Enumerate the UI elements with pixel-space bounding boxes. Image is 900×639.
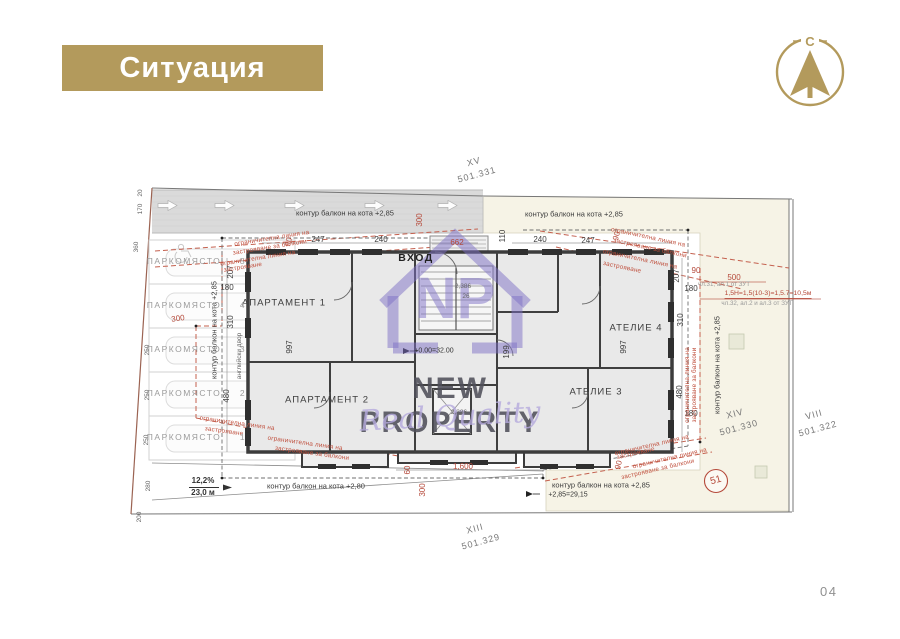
parking-spot-number: 5 — [240, 257, 246, 266]
regulation-note: застрояване — [602, 261, 641, 275]
red-dim-60: 60 — [404, 466, 412, 475]
dim-20-boundary: 20 — [138, 189, 145, 196]
elevation-marker-label: +2,85=29,15 — [548, 492, 587, 499]
parking-spot-number: 2 — [240, 389, 246, 398]
dim-180-right-top: 180 — [684, 285, 697, 293]
red-dim-300-left: 300 — [171, 314, 185, 324]
height-formula: 1,5Н=1,5(10-3)=1,5.7=10,5м — [725, 291, 812, 299]
law-reference: чл.31, ал.1 от ЗУТ — [698, 282, 750, 288]
parking-spot-number: 3 — [240, 345, 246, 354]
stair-count: 26 — [462, 294, 469, 301]
balcony-contour-label: контур балкон на кота +2,85 — [210, 281, 218, 379]
dim-310-right: 310 — [677, 313, 685, 326]
dim-997-left: 997 — [286, 340, 294, 353]
dim-240-top-left: 240 — [374, 236, 387, 244]
dim-207-right: 207 — [673, 269, 681, 282]
red-dim-90-bottomright: 90 — [614, 460, 624, 471]
parking-spot-label: ПАРКОМЯСТО — [147, 301, 221, 310]
dim-240-top-right: 240 — [533, 236, 546, 244]
dim-360-boundary: 360 — [134, 242, 141, 253]
page-number: 04 — [820, 584, 837, 599]
parking-spot-number: 4 — [240, 301, 246, 310]
dim-200-boundary: 200 — [137, 512, 144, 523]
red-dim-1600: 1,600 — [453, 463, 473, 471]
law-reference: чл.32, ал.2 и ал.3 от ЗУТ — [721, 301, 792, 307]
balcony-contour-label: контур балкон на кота +2,85 — [525, 210, 623, 218]
parking-spot-label: ПАРКОМЯСТО — [147, 389, 221, 398]
elevation-marker-label: +0.00=32.00 — [414, 348, 453, 355]
ramp-slope-percent: 12,2% — [192, 477, 215, 485]
parking-spot-number: 1 — [240, 433, 246, 442]
red-dim-90-right: 90 — [692, 267, 701, 275]
balcony-contour-label: контур балкон на кота +2,85 — [552, 481, 650, 489]
dim-480-right: 480 — [676, 385, 684, 398]
point-51-label: 51 — [709, 475, 722, 488]
parking-spot-label: ПАРКОМЯСТО — [147, 345, 221, 354]
plot-elevation-xv: 501.331 — [457, 166, 498, 185]
dim-480-left: 480 — [223, 389, 231, 402]
dim-997-right: 997 — [620, 340, 628, 353]
dim-310-left: 310 — [227, 315, 235, 328]
dim-170-boundary: 170 — [138, 204, 145, 215]
red-dim-300-top: 300 — [416, 213, 424, 226]
room-label-apartment-2: АПАРТАМЕНТ 2 — [285, 395, 369, 405]
plot-id-xiii: XIII — [465, 522, 484, 535]
plot-id-viii: VIII — [804, 408, 823, 421]
plot-id-xv: XV — [466, 156, 482, 168]
parking-spot-label: ПАРКОМЯСТО — [147, 433, 221, 442]
regulation-note: застрояване за балкони — [692, 348, 698, 423]
plot-elevation-viii: 501.322 — [798, 420, 839, 439]
parking-spot-label: ПАРКОМЯСТО — [147, 257, 221, 266]
room-label-atelier-4: АТЕЛИЕ 4 — [609, 323, 662, 333]
plot-id-xiv: XIV — [725, 407, 744, 420]
english-yard-label: английски двор — [237, 333, 244, 379]
dim-247-top-left: 247 — [311, 236, 324, 244]
ramp-length: 23,0 м — [191, 489, 215, 497]
room-label-apartment-1: АПАРТАМЕНТ 1 — [242, 298, 326, 308]
red-dim-300-bottom: 300 — [419, 483, 427, 496]
plan-labels-layer: 2472401102402472071803104809971999972071… — [0, 0, 900, 639]
plot-elevation-xiv: 501.330 — [719, 419, 760, 438]
dim-280-boundary: 280 — [146, 481, 153, 492]
dim-elevator: 2,386 — [451, 410, 467, 417]
dim-199-center: 199 — [503, 345, 511, 358]
balcony-contour-label: контур балкон на кота +2,85 — [296, 209, 394, 217]
red-dim-662: 662 — [450, 239, 463, 247]
dim-stair: 2,386 — [455, 284, 471, 291]
balcony-contour-label: контур балкон на кота +2,80 — [267, 482, 365, 490]
room-label-atelier-3: АТЕЛИЕ 3 — [569, 387, 622, 397]
dim-180-left: 180 — [220, 284, 233, 292]
entrance-label: ВХОД — [398, 253, 433, 264]
balcony-contour-label: контур балкон на кота +2,85 — [713, 316, 721, 414]
dim-247-top-right: 247 — [581, 237, 594, 245]
dim-110-top: 110 — [499, 230, 507, 243]
situation-plan-slide: Ситуация С — [0, 0, 900, 639]
